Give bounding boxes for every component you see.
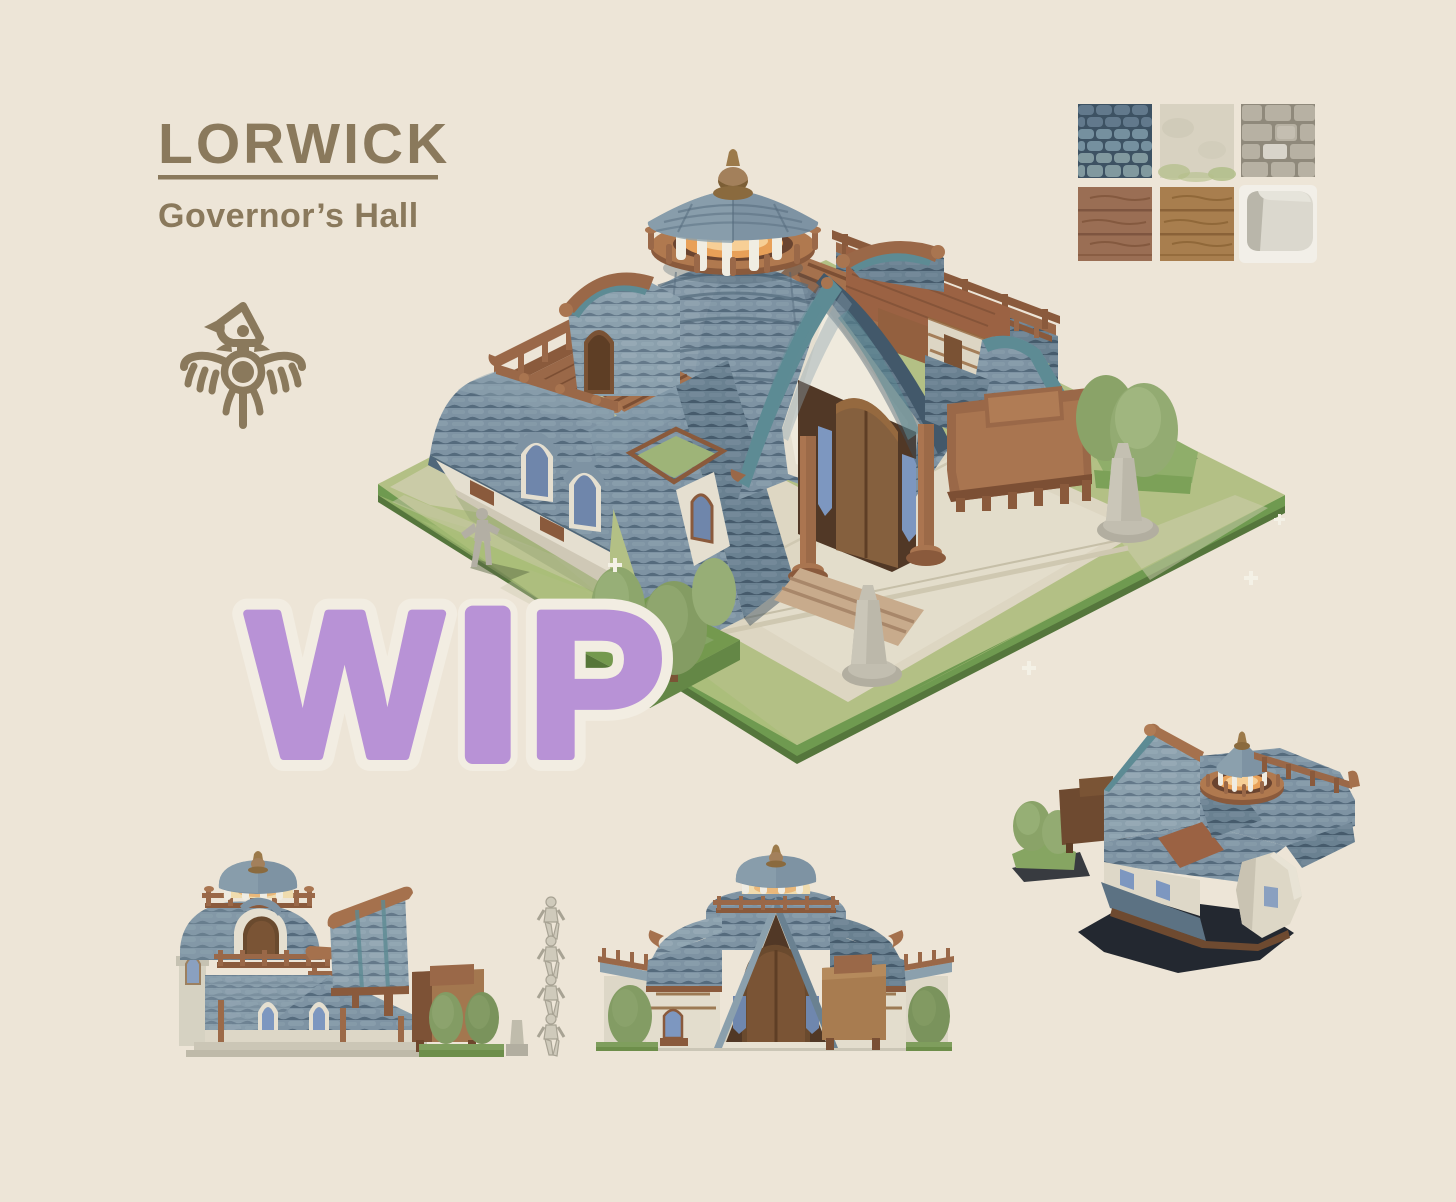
svg-text:W: W <box>247 569 443 800</box>
svg-text:P: P <box>527 569 665 800</box>
svg-text:I: I <box>459 569 517 800</box>
svg-text:LORWICK: LORWICK <box>158 112 450 176</box>
svg-text:Governor’s Hall: Governor’s Hall <box>158 197 419 235</box>
